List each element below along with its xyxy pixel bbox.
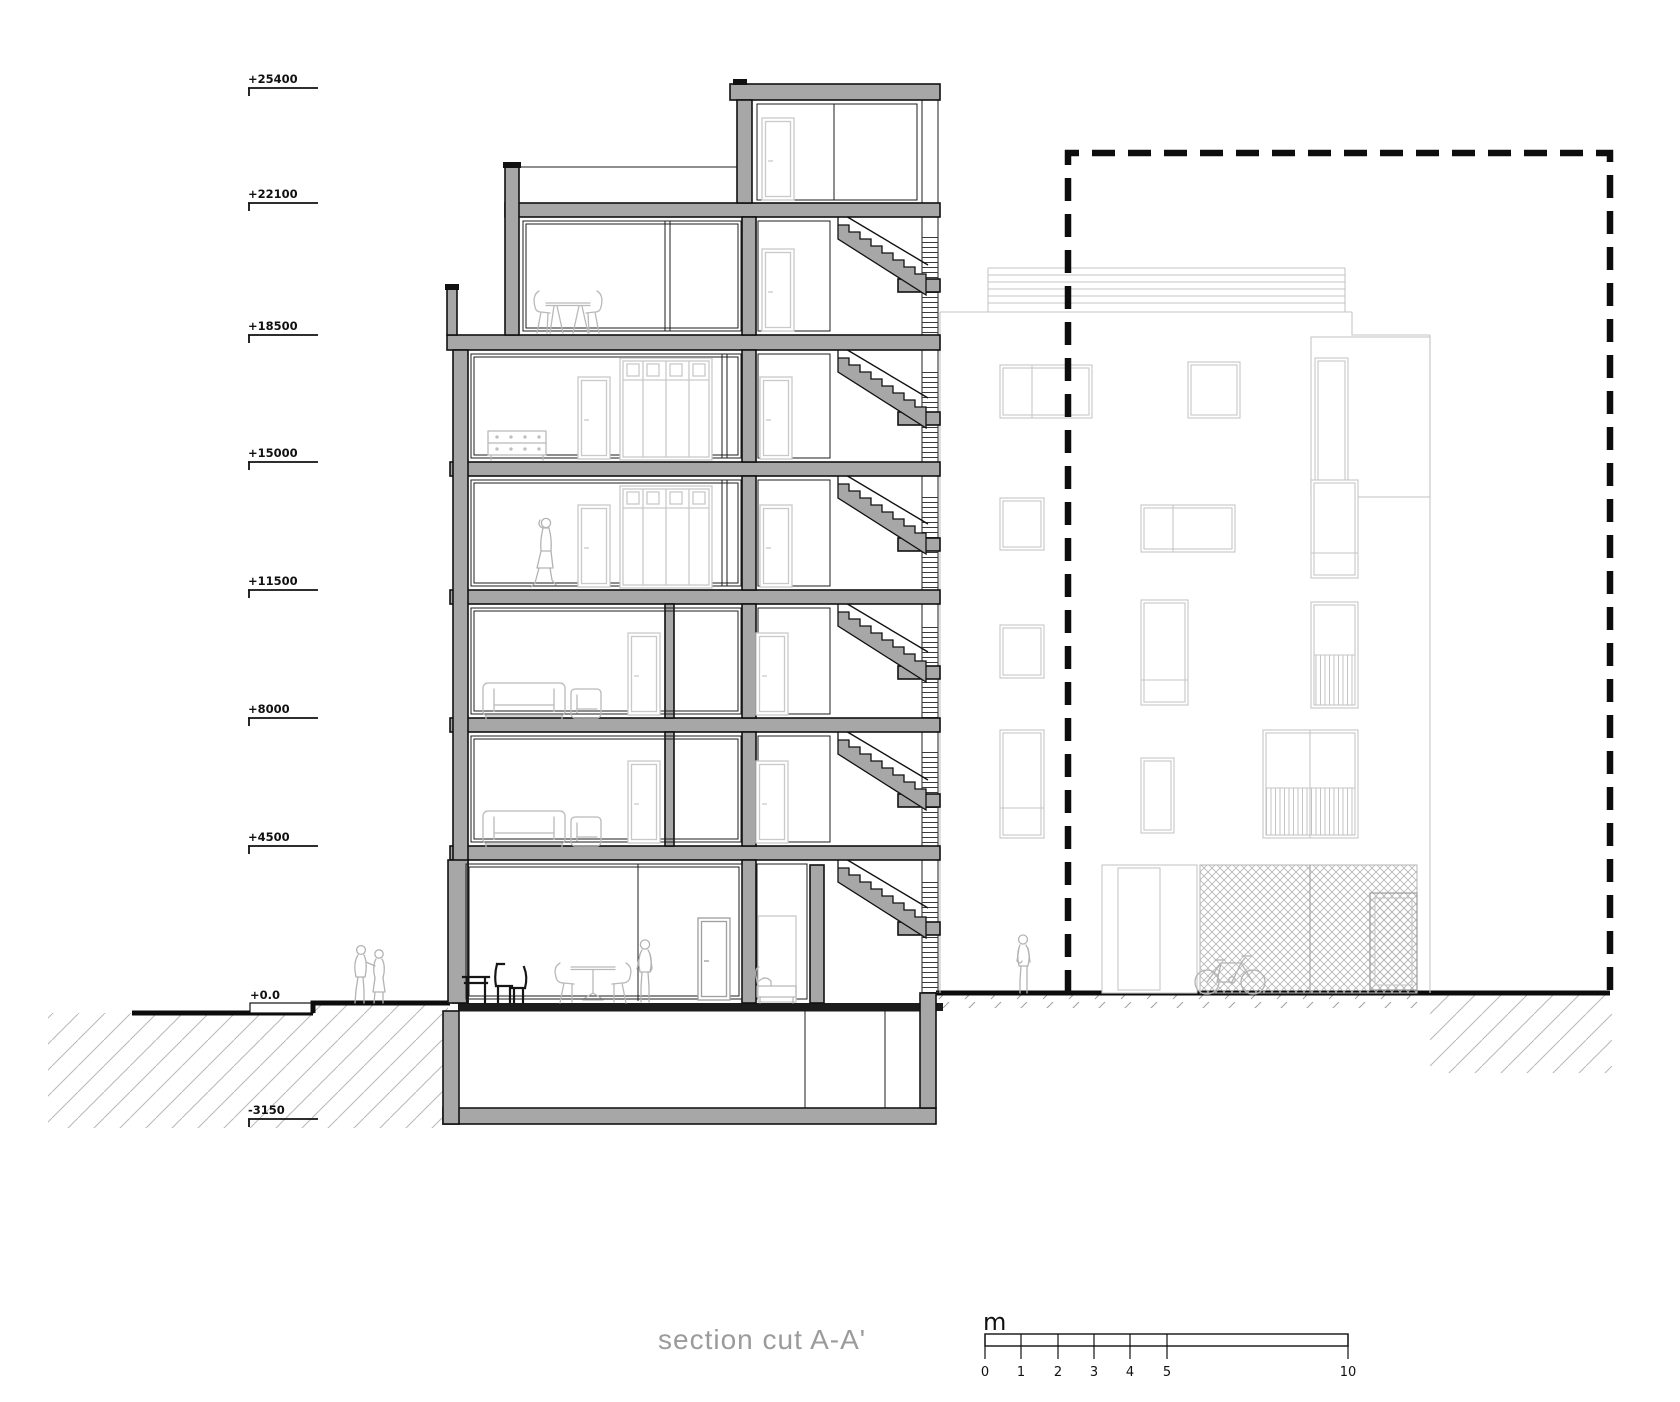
level-label: +0.0	[250, 988, 280, 1002]
level-label: +11500	[248, 574, 298, 588]
scale-tick-label: 10	[1340, 1365, 1357, 1380]
scale-tick-label: 0	[981, 1365, 989, 1380]
level-label: +8000	[248, 702, 290, 716]
couple-figure-street	[355, 946, 385, 1003]
level-label: +18500	[248, 319, 298, 333]
person-figure-3f	[531, 518, 556, 587]
glazed-partition-3f	[620, 486, 712, 588]
bistro-set-dark	[463, 964, 526, 1003]
level-label: -3150	[248, 1103, 285, 1117]
stair-tower-roof-slab	[730, 84, 940, 100]
building-section	[355, 79, 943, 1124]
level-marker-22100: +22100	[248, 187, 318, 211]
section-drawing: +25400 +22100 +18500 +15000 +11500 +8000…	[0, 0, 1680, 1402]
stair-flights	[834, 209, 928, 938]
scale-tick-label: 5	[1163, 1365, 1171, 1380]
scale-tick-label: 2	[1054, 1365, 1062, 1380]
mesh-gate	[1370, 893, 1417, 990]
level-marker-0: +0.0	[250, 988, 280, 1002]
entry-step	[250, 1003, 313, 1013]
scale-tick-label: 3	[1090, 1365, 1098, 1380]
interior-doors	[578, 118, 796, 1002]
ground-floor-slab	[458, 1003, 943, 1011]
glazed-partition-4f	[620, 358, 712, 460]
level-marker-8000: +8000	[248, 702, 318, 726]
scale-tick-label: 1	[1017, 1365, 1025, 1380]
level-marker-15000: +15000	[248, 446, 318, 470]
level-label: +25400	[248, 72, 298, 86]
elevation-markers: +25400 +22100 +18500 +15000 +11500 +8000…	[248, 72, 318, 1127]
terrace-parapet	[447, 289, 457, 335]
person-figure-gf	[637, 940, 652, 1002]
architectural-sheet: +25400 +22100 +18500 +15000 +11500 +8000…	[0, 0, 1680, 1402]
door-ground-floor	[698, 918, 730, 1000]
facade-windows	[1000, 337, 1430, 993]
basement-slab	[443, 1108, 936, 1124]
scale-unit-label: m	[983, 1308, 1006, 1336]
level-label: +22100	[248, 187, 298, 201]
level-marker-25400: +25400	[248, 72, 318, 96]
level-marker-11500: +11500	[248, 574, 318, 598]
sidewalk-hatch	[936, 995, 1430, 1008]
person-figure-street	[1017, 935, 1030, 993]
terrain-hatch-right	[1430, 995, 1612, 1073]
level-label: +4500	[248, 830, 290, 844]
background-building-elevation	[940, 268, 1430, 994]
section-title: section cut A-A'	[658, 1324, 866, 1355]
dresser	[488, 431, 546, 460]
level-marker-18500: +18500	[248, 319, 318, 343]
level-marker-4500: +4500	[248, 830, 318, 854]
scale-tick-label: 4	[1126, 1365, 1134, 1380]
cafe-table	[555, 963, 631, 1003]
door-penthouse	[762, 118, 794, 200]
dining-set-top-floor	[534, 291, 602, 333]
scale-bar: m 0 1 2 3 4 5 10	[981, 1308, 1356, 1380]
level-label: +15000	[248, 446, 298, 460]
